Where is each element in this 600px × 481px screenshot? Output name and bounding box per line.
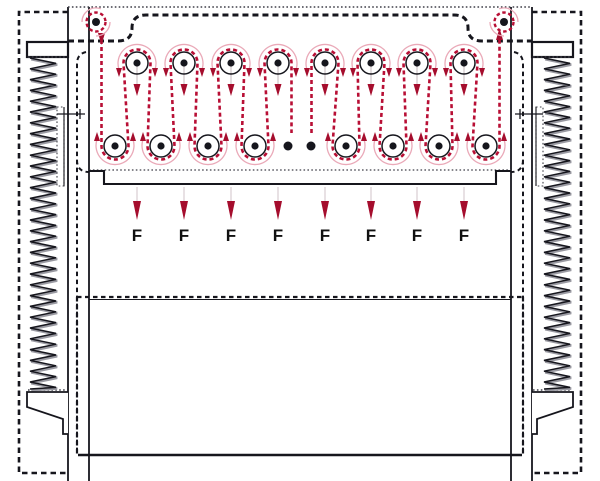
rotation-arrowhead — [293, 68, 299, 77]
roller-drop-arrowhead — [228, 84, 235, 96]
force-label: F — [226, 226, 236, 245]
force-label: F — [412, 226, 422, 245]
right-guide-rail — [536, 107, 543, 186]
rotation-arrowhead — [396, 68, 402, 77]
rotation-arrowhead — [501, 132, 507, 141]
top-roller — [210, 44, 252, 96]
lower-platen — [77, 297, 523, 455]
force-label: F — [366, 226, 376, 245]
roller-hub — [251, 142, 258, 149]
right-bottom-spring-bracket — [532, 392, 573, 434]
roller-hub — [180, 59, 187, 66]
force-arrow: F — [412, 187, 422, 245]
force-arrowhead — [413, 201, 421, 220]
rotation-arrowhead — [340, 68, 346, 77]
rotation-arrowhead — [187, 132, 193, 141]
roller-hub — [367, 59, 374, 66]
rotation-arrowhead — [210, 68, 216, 77]
carriage-left-step — [77, 160, 89, 172]
rotation-arrowhead — [116, 68, 122, 77]
rotation-arrowhead — [386, 68, 392, 77]
top-roller — [443, 44, 485, 96]
force-arrow: F — [320, 187, 330, 245]
force-arrowhead — [180, 201, 188, 220]
force-label: F — [179, 226, 189, 245]
top-roller — [350, 44, 392, 96]
continuation-dot — [284, 142, 293, 151]
roller-hub — [413, 59, 420, 66]
rotation-arrowhead — [140, 132, 146, 141]
rotation-arrowhead — [432, 68, 438, 77]
force-arrowhead — [321, 201, 329, 220]
force-arrow-layer: FFFFFFFF — [132, 187, 469, 245]
belt-path-layer — [98, 28, 503, 160]
carriage-side-outlines — [77, 52, 523, 455]
force-label: F — [459, 226, 469, 245]
continuation-dot — [307, 142, 316, 151]
rotation-arrowhead — [234, 132, 240, 141]
roller-drop-arrowhead — [368, 84, 375, 96]
rotation-arrowhead — [176, 132, 182, 141]
rotation-arrowhead — [130, 132, 136, 141]
roller-drop-arrowhead — [322, 84, 329, 96]
carriage-right-outline — [514, 52, 523, 455]
force-arrow: F — [273, 187, 283, 245]
roller-hub — [274, 59, 281, 66]
rotation-arrowhead — [372, 132, 378, 141]
carriage-right-step — [511, 160, 523, 172]
press-plate — [89, 171, 511, 184]
force-label: F — [273, 226, 283, 245]
force-arrowhead — [367, 201, 375, 220]
rotation-arrowhead — [199, 68, 205, 77]
rotation-arrowhead — [257, 68, 263, 77]
roller-hub — [133, 59, 140, 66]
force-arrow: F — [226, 187, 236, 245]
rotation-arrowhead — [350, 68, 356, 77]
springs — [30, 58, 571, 390]
roller-hub — [204, 142, 211, 149]
carriage-top-outline — [68, 15, 532, 41]
rotation-arrowhead — [223, 132, 229, 141]
rotation-arrowhead — [325, 132, 331, 141]
top-roller — [116, 44, 158, 96]
outer-frame — [19, 12, 581, 473]
force-arrowhead — [274, 201, 282, 220]
rotation-arrowhead — [465, 132, 471, 141]
force-arrowhead — [460, 201, 468, 220]
rotation-arrowhead — [408, 132, 414, 141]
left-guide-rail — [57, 107, 64, 186]
bottom-roller — [187, 132, 229, 165]
left-top-spring-bracket — [27, 42, 68, 57]
carriage-left-outline — [77, 52, 86, 455]
force-arrowhead — [227, 201, 235, 220]
roller-drop-arrowhead — [461, 84, 468, 96]
roller-hub — [435, 142, 442, 149]
pulley-hub — [500, 18, 508, 26]
serpentine-belt-path — [102, 33, 500, 160]
roller-hub — [157, 142, 164, 149]
rotation-arrowhead — [270, 132, 276, 141]
force-arrowhead — [133, 201, 141, 220]
rotation-arrowhead — [94, 132, 100, 141]
force-arrow: F — [132, 187, 142, 245]
rotation-arrowhead — [479, 68, 485, 77]
roller-drop-arrowhead — [134, 84, 141, 96]
rotation-arrowhead — [246, 68, 252, 77]
corner-pulley — [490, 8, 518, 36]
roller-hub — [482, 142, 489, 149]
bottom-roller — [325, 132, 367, 165]
rotation-arrowhead — [361, 132, 367, 141]
force-arrow: F — [366, 187, 376, 245]
bottom-roller — [372, 132, 414, 165]
rotation-arrowhead — [163, 68, 169, 77]
force-label: F — [320, 226, 330, 245]
force-arrow: F — [459, 187, 469, 245]
corner-pulley — [82, 8, 110, 36]
roller-drop-arrowhead — [181, 84, 188, 96]
machine-diagram: FFFFFFFF — [0, 0, 600, 481]
rotation-arrowhead — [418, 132, 424, 141]
roller-drop-arrowhead — [275, 84, 282, 96]
rotation-arrowhead — [304, 68, 310, 77]
spring-assemblies — [27, 42, 573, 434]
roller-hub — [460, 59, 467, 66]
left-bottom-spring-bracket — [27, 392, 68, 434]
top-roller — [396, 44, 438, 96]
roller-drop-arrowhead — [414, 84, 421, 96]
roller-hub — [111, 142, 118, 149]
rotation-arrowhead — [152, 68, 158, 77]
rotation-arrowhead — [443, 68, 449, 77]
right-top-spring-bracket — [532, 42, 573, 57]
top-roller — [163, 44, 205, 96]
roller-hub — [321, 59, 328, 66]
bottom-roller — [140, 132, 182, 165]
roller-hub — [227, 59, 234, 66]
force-arrow: F — [179, 187, 189, 245]
force-label: F — [132, 226, 142, 245]
guide-rails — [57, 107, 543, 186]
roller-hub — [342, 142, 349, 149]
roller-hub — [389, 142, 396, 149]
pulley-hub — [92, 18, 100, 26]
rotation-arrowhead — [454, 132, 460, 141]
